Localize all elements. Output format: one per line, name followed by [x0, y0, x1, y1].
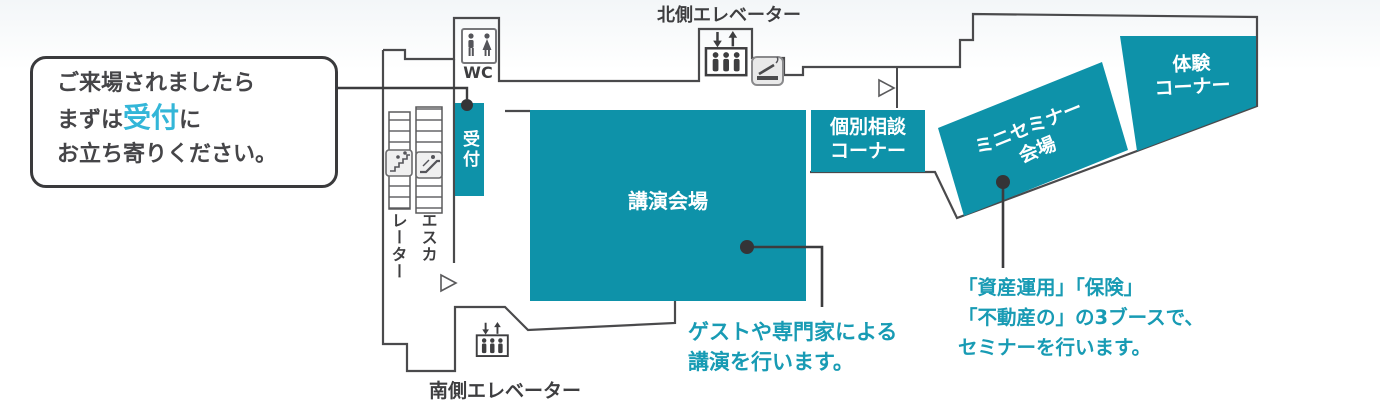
- callout-line1: ご来場されましたら: [57, 67, 335, 101]
- wc-icon: [462, 29, 496, 63]
- experience-corner-label: 体験 コーナー: [1121, 46, 1264, 105]
- north-elevator-label: 北側エレベーター: [629, 1, 829, 27]
- south-elevator-icon: [477, 322, 508, 356]
- consultation-corner-label: 個別相談 コーナー: [811, 115, 925, 163]
- direction-triangle-south: [441, 275, 456, 291]
- reception-label: 受付: [455, 103, 484, 196]
- reception-highlight: 受付: [123, 101, 179, 134]
- south-elevator-label: 南側エレベーター: [405, 376, 605, 403]
- escalator-label-col-left: レーター: [389, 212, 407, 280]
- lecture-note: ゲストや専門家による 講演を行います。: [688, 317, 897, 377]
- callout-bubble: ご来場されましたら まずは受付に お立ち寄りください。: [30, 56, 338, 188]
- escalator-icon: [416, 152, 442, 178]
- smoking-area-icon: [752, 57, 783, 85]
- callout-line3: お立ち寄りください。: [57, 138, 335, 172]
- callout-line2: まずは受付に: [57, 101, 335, 138]
- direction-triangle-east: [879, 80, 894, 96]
- callout-connector-line: [332, 88, 467, 99]
- floor-map: ご来場されましたら まずは受付に お立ち寄りください。 北側エレベーター 南側エ…: [0, 0, 1380, 403]
- stairs-icon: [386, 150, 412, 176]
- escalator-label-col-right: エスカ: [419, 212, 437, 263]
- lecture-hall-label: 講演会場: [530, 185, 806, 214]
- wc-label: WC: [452, 63, 504, 82]
- north-elevator-icon: [706, 31, 746, 75]
- connector-dot-lecture: [740, 240, 754, 254]
- seminar-note: 「資産運用」「保険」 「不動産の」の3ブースで、 セミナーを行います。: [958, 273, 1204, 363]
